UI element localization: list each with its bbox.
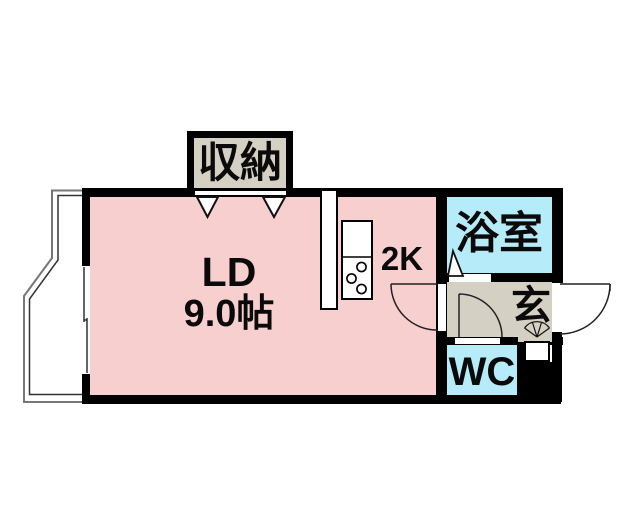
kitchen-door-opening (438, 284, 446, 331)
bathroom-label: 浴室 (449, 211, 549, 257)
entrance-label: 玄 (501, 285, 561, 327)
wc-door-opening (455, 338, 500, 344)
floor-plan: 収納 LD 9.0帖 2K 浴室 玄 WC (0, 0, 640, 512)
balcony-outline-inner (30, 196, 83, 395)
wall-right-upper (552, 188, 563, 283)
wall-bottom (82, 395, 561, 404)
kitchen-label: 2K (362, 241, 442, 275)
bathroom-door-opening (449, 274, 491, 282)
window-opening (81, 266, 90, 374)
storage-label: 収納 (194, 138, 286, 188)
living-dining-size-label: 9.0帖 (129, 295, 329, 333)
storage-opening (195, 191, 286, 195)
entrance-door-swing-icon (560, 284, 610, 334)
living-dining-label: LD (149, 252, 309, 292)
kitchen-partition (320, 189, 338, 310)
balcony-outline-outer (24, 191, 82, 403)
toilet-label: WC (432, 351, 532, 393)
